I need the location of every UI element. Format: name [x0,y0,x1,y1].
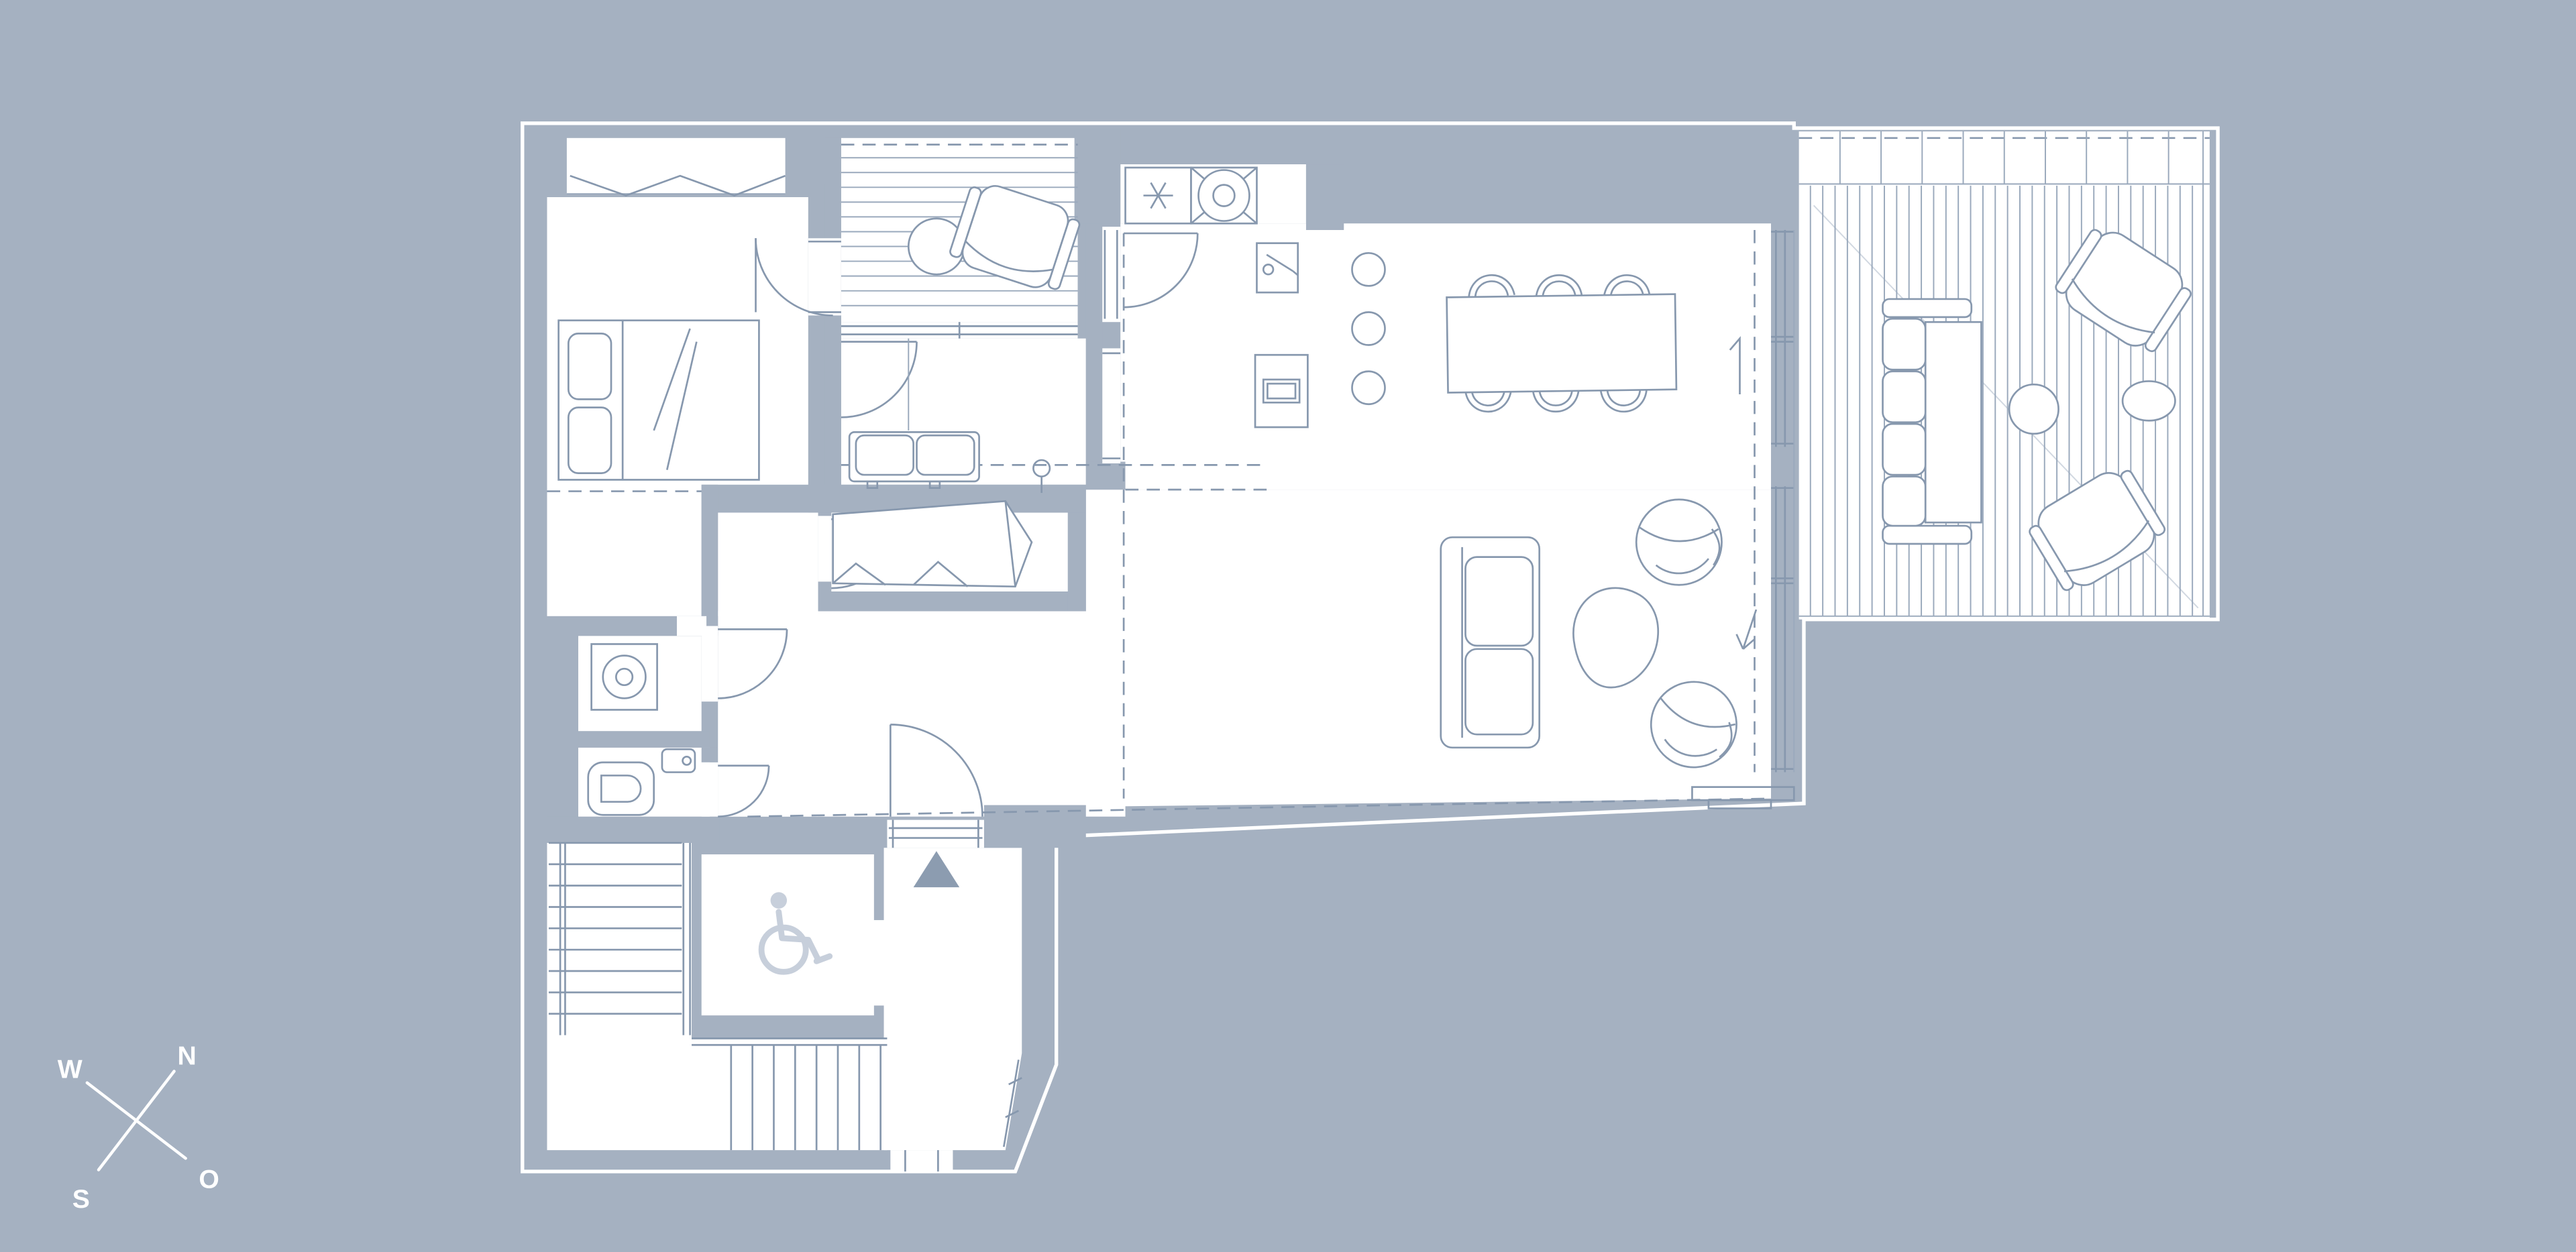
kitchen-stool [1352,253,1385,286]
kitchen-stool [1352,372,1385,404]
compass-east-label: O [199,1165,219,1194]
terrace-round-table [2009,384,2058,434]
swivel-chair [1636,500,1721,585]
vestibule-floor [884,848,1022,1150]
room-floors [547,131,2210,1150]
floor-plan-viewer: N W S O [0,0,2576,1252]
kitchen-stool [1352,312,1385,345]
compass-north-label: N [177,1042,196,1071]
island-hob [1255,355,1307,427]
compass-west-label: W [58,1055,83,1084]
sofa [1441,537,1540,748]
washing-machine-icon [592,644,657,709]
terrace-oval-table [2123,381,2175,420]
bedroom-furniture [559,321,759,480]
dining-table [1447,294,1676,393]
elevator-floor [702,854,874,1015]
toilet-icon [588,762,654,815]
compass-rose-icon: N W S O [58,1042,219,1214]
bedroom2-furniture [849,432,979,488]
laundry-room [592,644,657,709]
stove-burner-icon [1191,168,1257,223]
cabinet-room-bed [833,501,1032,586]
terrace-sofa [1883,299,1982,544]
compass-south-label: S [72,1185,90,1214]
hallway-floor-south [718,611,1125,816]
island-sink [1256,243,1297,293]
floor-plan-canvas: N W S O [0,0,2576,1252]
